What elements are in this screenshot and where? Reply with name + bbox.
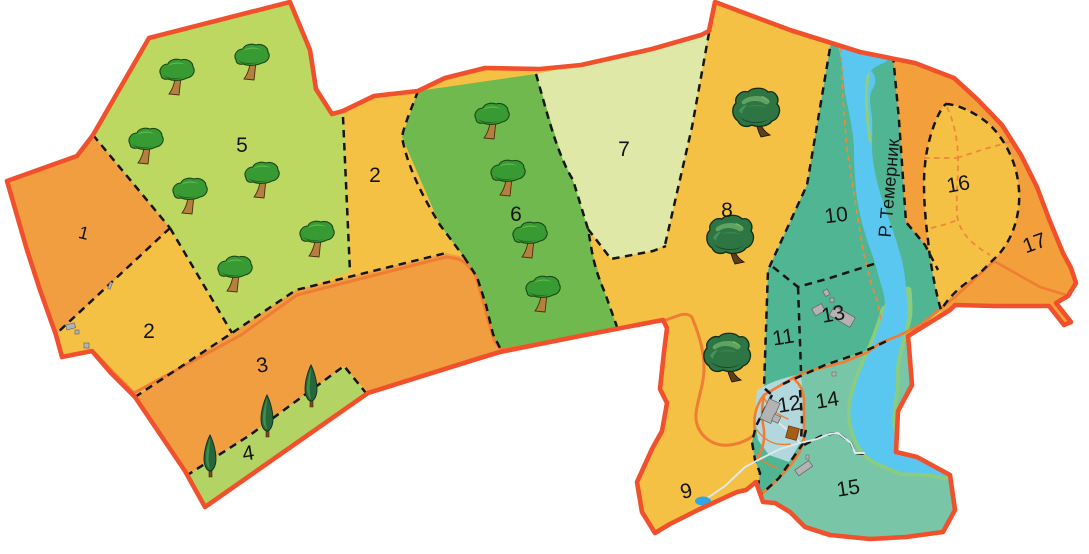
svg-text:13: 13 <box>820 301 847 328</box>
svg-text:2: 2 <box>143 320 155 343</box>
svg-text:12: 12 <box>776 391 803 417</box>
svg-text:2: 2 <box>369 164 381 187</box>
svg-text:14: 14 <box>814 387 841 413</box>
svg-text:10: 10 <box>823 203 849 229</box>
svg-text:11: 11 <box>771 324 796 350</box>
svg-text:7: 7 <box>618 138 630 161</box>
svg-text:5: 5 <box>236 134 248 157</box>
svg-text:16: 16 <box>945 171 972 198</box>
svg-text:6: 6 <box>510 203 522 226</box>
svg-text:8: 8 <box>721 199 733 222</box>
svg-text:15: 15 <box>835 475 862 501</box>
